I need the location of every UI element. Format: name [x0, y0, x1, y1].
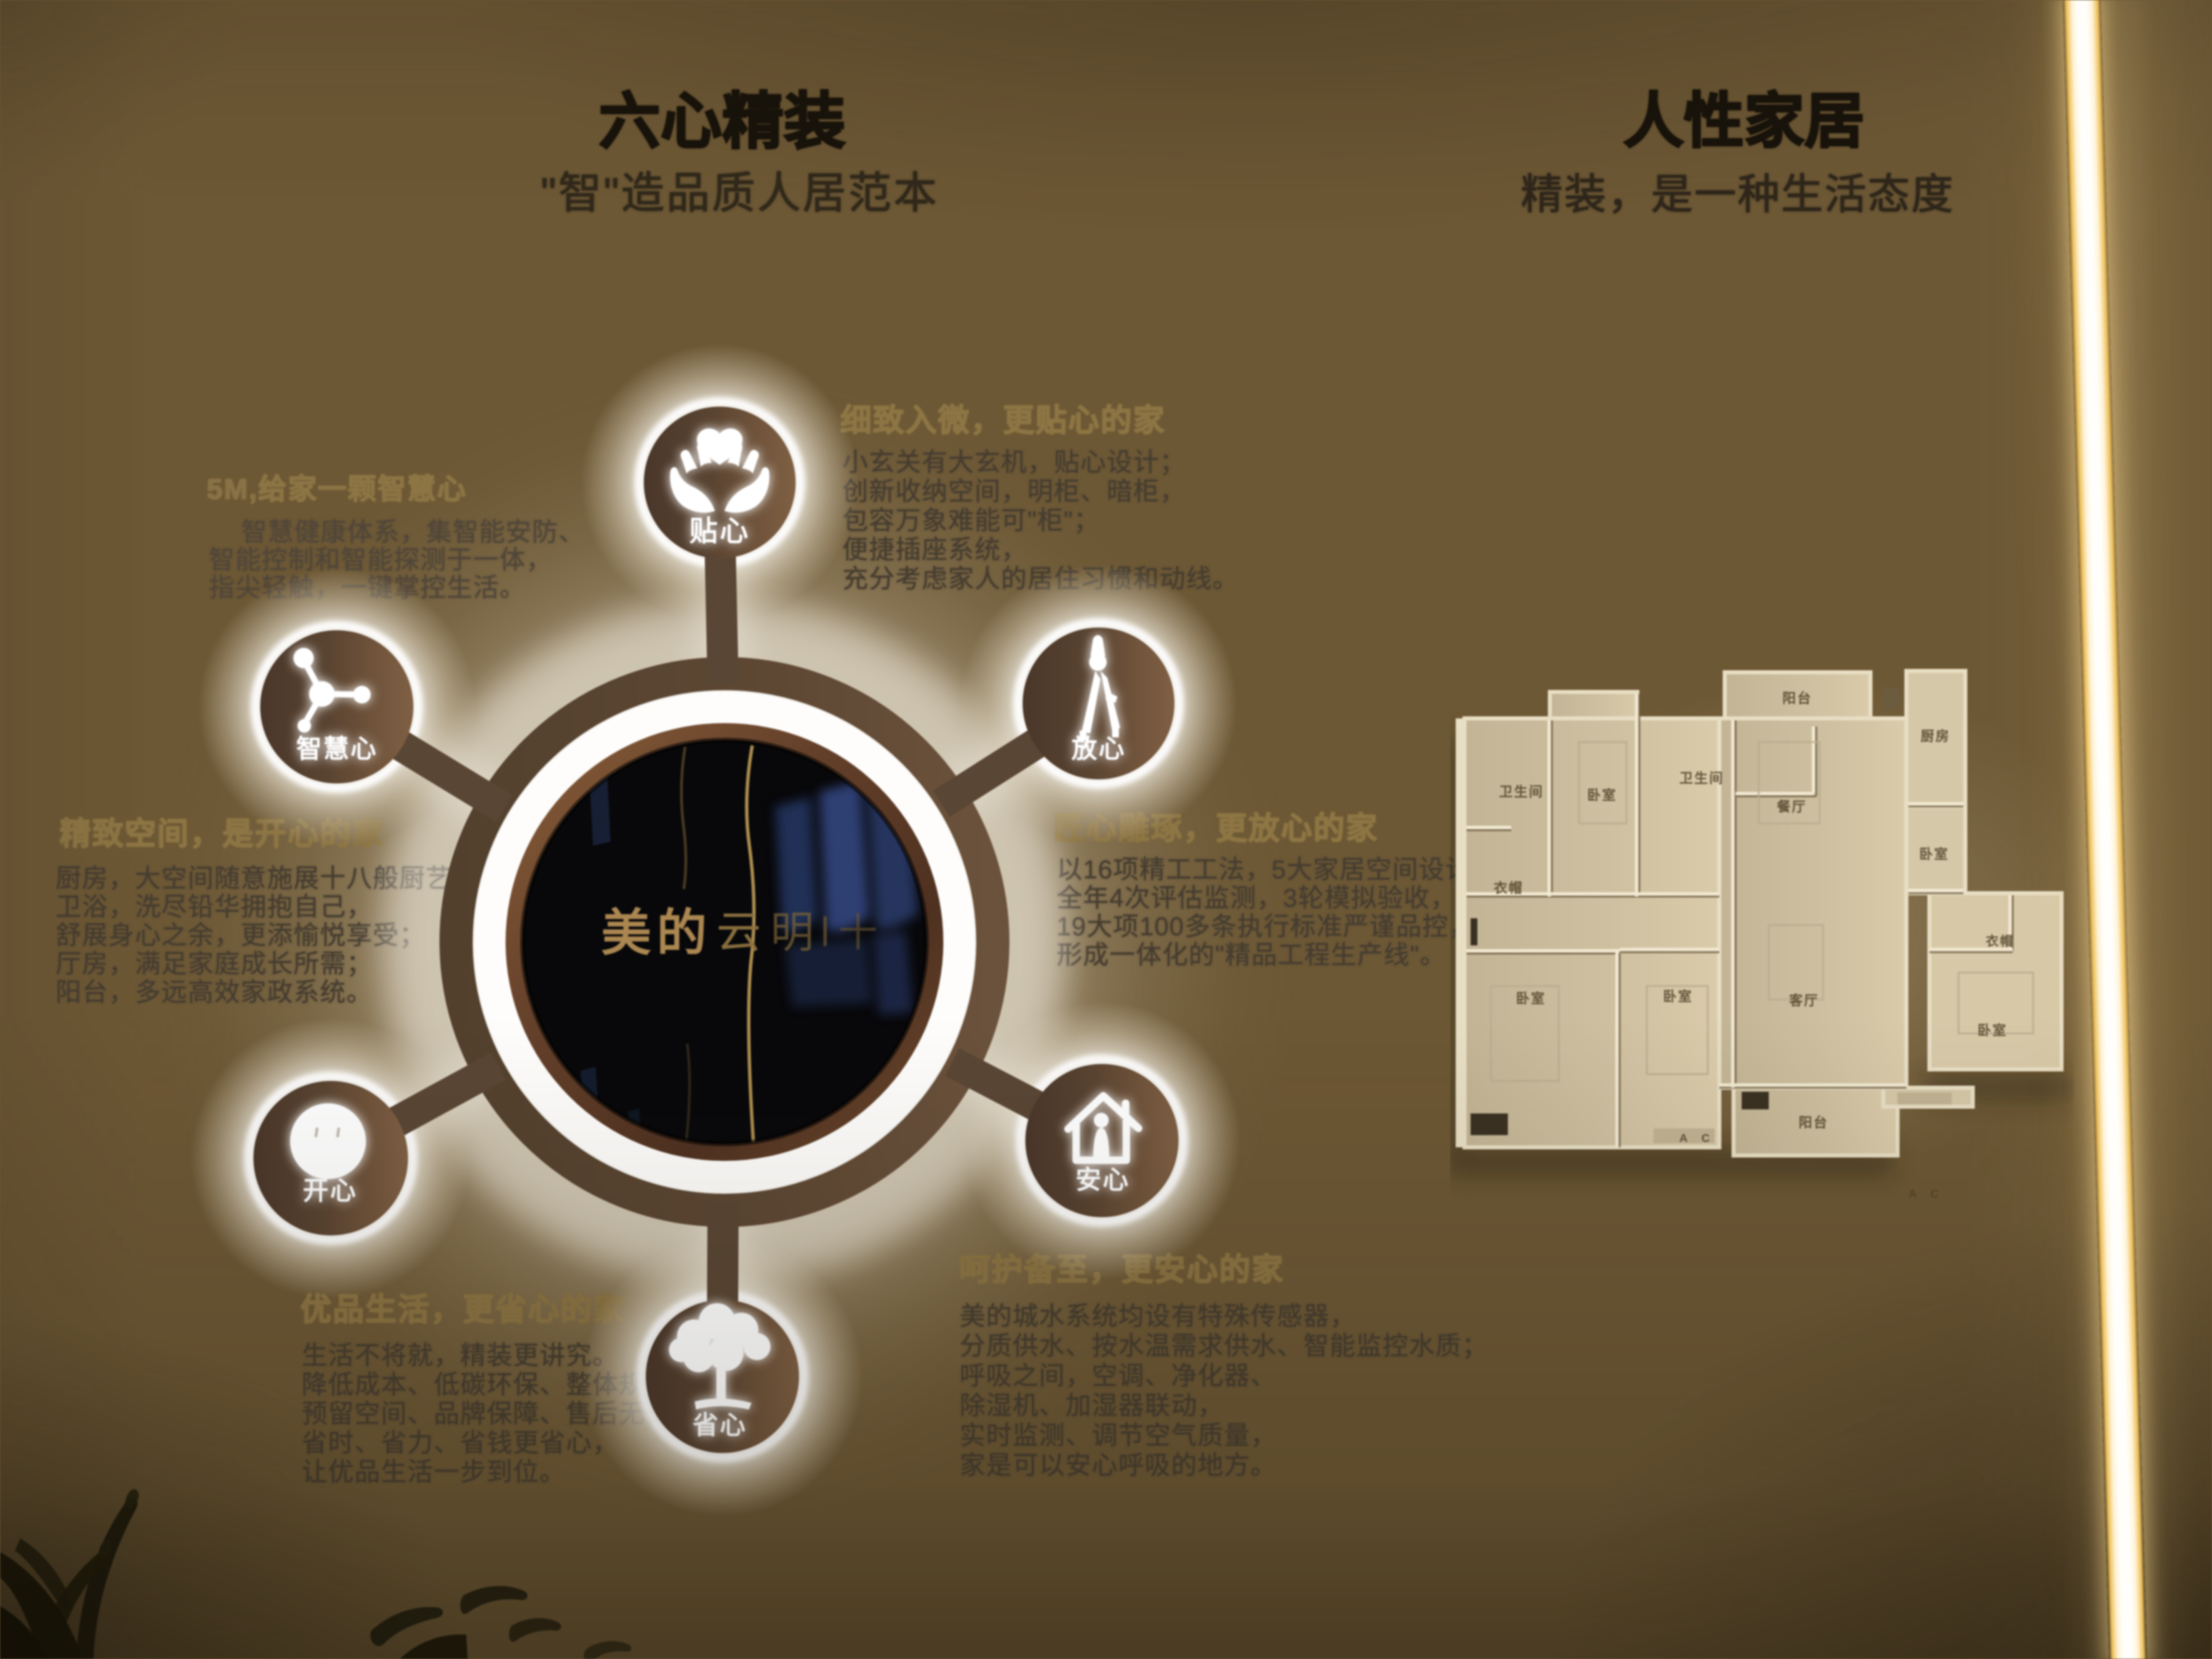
svg-text:卫生间: 卫生间 — [1679, 771, 1724, 786]
svg-text:A C: A C — [1908, 1187, 1940, 1200]
svg-text:衣帽: 衣帽 — [1986, 933, 2014, 949]
svg-text:阳台: 阳台 — [1782, 690, 1812, 706]
svg-text:阳台: 阳台 — [1799, 1114, 1828, 1130]
svg-text:卫生间: 卫生间 — [1499, 784, 1544, 800]
svg-text:卧室: 卧室 — [1587, 787, 1617, 803]
svg-text:衣帽: 衣帽 — [1494, 880, 1523, 896]
svg-text:明: 明 — [771, 908, 814, 957]
svg-text:十: 十 — [838, 911, 878, 955]
svg-text:客厅: 客厅 — [1788, 992, 1819, 1008]
svg-text:美的: 美的 — [601, 905, 712, 961]
svg-text:卧室: 卧室 — [1516, 990, 1546, 1006]
svg-text:卧室: 卧室 — [1919, 846, 1949, 862]
svg-text:A C: A C — [1679, 1132, 1711, 1145]
svg-text:厨房: 厨房 — [1921, 728, 1950, 744]
svg-text:卧室: 卧室 — [1978, 1022, 2007, 1038]
svg-text:餐厅: 餐厅 — [1777, 798, 1807, 815]
svg-text:卧室: 卧室 — [1663, 988, 1693, 1004]
svg-text:云: 云 — [716, 907, 765, 957]
